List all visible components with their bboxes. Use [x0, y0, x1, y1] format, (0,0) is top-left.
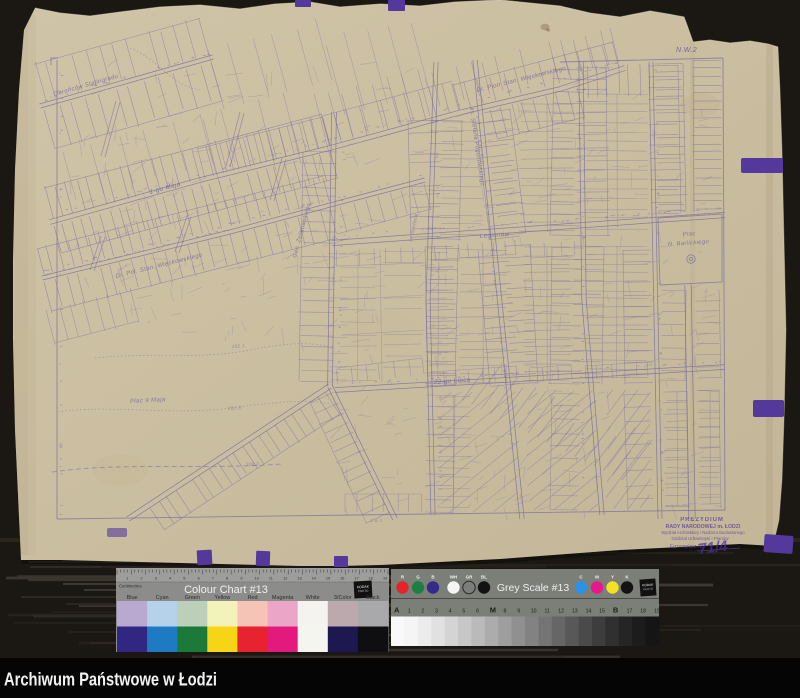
svg-text:14: 14 [312, 577, 316, 581]
svg-text:11: 11 [269, 577, 273, 581]
svg-text:13: 13 [297, 577, 301, 581]
svg-text:17: 17 [627, 609, 633, 615]
svg-text:Grey Scale #13: Grey Scale #13 [497, 582, 570, 594]
svg-text:12: 12 [558, 609, 564, 615]
svg-text:Blue: Blue [127, 595, 138, 601]
svg-text:15: 15 [326, 577, 330, 581]
svg-text:PHOTO: PHOTO [358, 589, 369, 594]
svg-text:2: 2 [141, 577, 143, 581]
svg-text:10: 10 [255, 577, 259, 581]
svg-text:3: 3 [435, 609, 438, 615]
svg-text:Centimetres: Centimetres [119, 584, 142, 589]
svg-text:A: A [394, 606, 400, 615]
svg-text:14: 14 [586, 609, 592, 615]
svg-text:17: 17 [355, 577, 359, 581]
svg-text:N.W.2: N.W.2 [676, 47, 697, 54]
svg-text:Cyan: Cyan [156, 595, 169, 601]
svg-text:Red: Red [247, 595, 257, 601]
svg-text:B: B [613, 606, 619, 615]
svg-text:Green: Green [185, 595, 200, 601]
svg-text:5: 5 [183, 577, 185, 581]
svg-text:Magenta: Magenta [272, 595, 294, 601]
svg-text:Y: Y [611, 575, 614, 580]
svg-text:19: 19 [383, 577, 387, 581]
svg-text:11: 11 [545, 609, 550, 615]
svg-text:Yellow: Yellow [215, 595, 231, 601]
svg-text:6: 6 [198, 577, 200, 581]
svg-text:6: 6 [476, 609, 479, 615]
svg-text:3/Color: 3/Color [334, 595, 352, 601]
svg-text:15: 15 [599, 609, 605, 615]
svg-text:White: White [306, 595, 320, 601]
svg-text:M: M [490, 606, 496, 615]
svg-text:71/4: 71/4 [697, 537, 729, 558]
svg-text:PREZYDIUM: PREZYDIUM [680, 517, 723, 523]
svg-text:18: 18 [369, 577, 373, 581]
svg-text:2: 2 [421, 609, 424, 615]
svg-text:WH: WH [450, 575, 458, 580]
svg-text:M: M [595, 575, 599, 580]
svg-text:1: 1 [126, 577, 128, 581]
svg-text:18: 18 [640, 609, 646, 615]
svg-text:9: 9 [517, 609, 520, 615]
svg-text:201.8: 201.8 [227, 405, 242, 411]
svg-text:Black: Black [366, 595, 380, 601]
svg-text:G: G [416, 575, 420, 580]
svg-text:13: 13 [572, 609, 578, 615]
svg-text:4: 4 [449, 609, 452, 615]
svg-text:202.1: 202.1 [231, 343, 246, 349]
svg-text:10: 10 [531, 609, 537, 615]
svg-text:2 w 1: 2 w 1 [369, 518, 383, 523]
svg-text:12: 12 [283, 577, 287, 581]
svg-text:5: 5 [462, 609, 465, 615]
svg-text:16: 16 [340, 577, 344, 581]
svg-text:9: 9 [240, 577, 242, 581]
svg-text:8: 8 [226, 577, 228, 581]
svg-text:200.2: 200.2 [245, 461, 260, 467]
svg-text:8: 8 [504, 609, 507, 615]
svg-text:3: 3 [155, 577, 157, 581]
svg-text:GR: GR [466, 575, 474, 580]
svg-text:BL: BL [481, 575, 487, 580]
svg-text:1: 1 [408, 609, 411, 615]
svg-text:4: 4 [169, 577, 171, 581]
svg-text:7: 7 [212, 577, 214, 581]
svg-text:Wydział Architektury i Nadzoru: Wydział Architektury i Nadzoru Budowlane… [661, 530, 745, 535]
svg-text:Archiwum Państwowe w Łodzi: Archiwum Państwowe w Łodzi [4, 670, 217, 690]
svg-text:19: 19 [654, 609, 660, 615]
svg-text:PHOTO: PHOTO [643, 587, 654, 592]
svg-text:Plac: Plac [683, 231, 696, 238]
